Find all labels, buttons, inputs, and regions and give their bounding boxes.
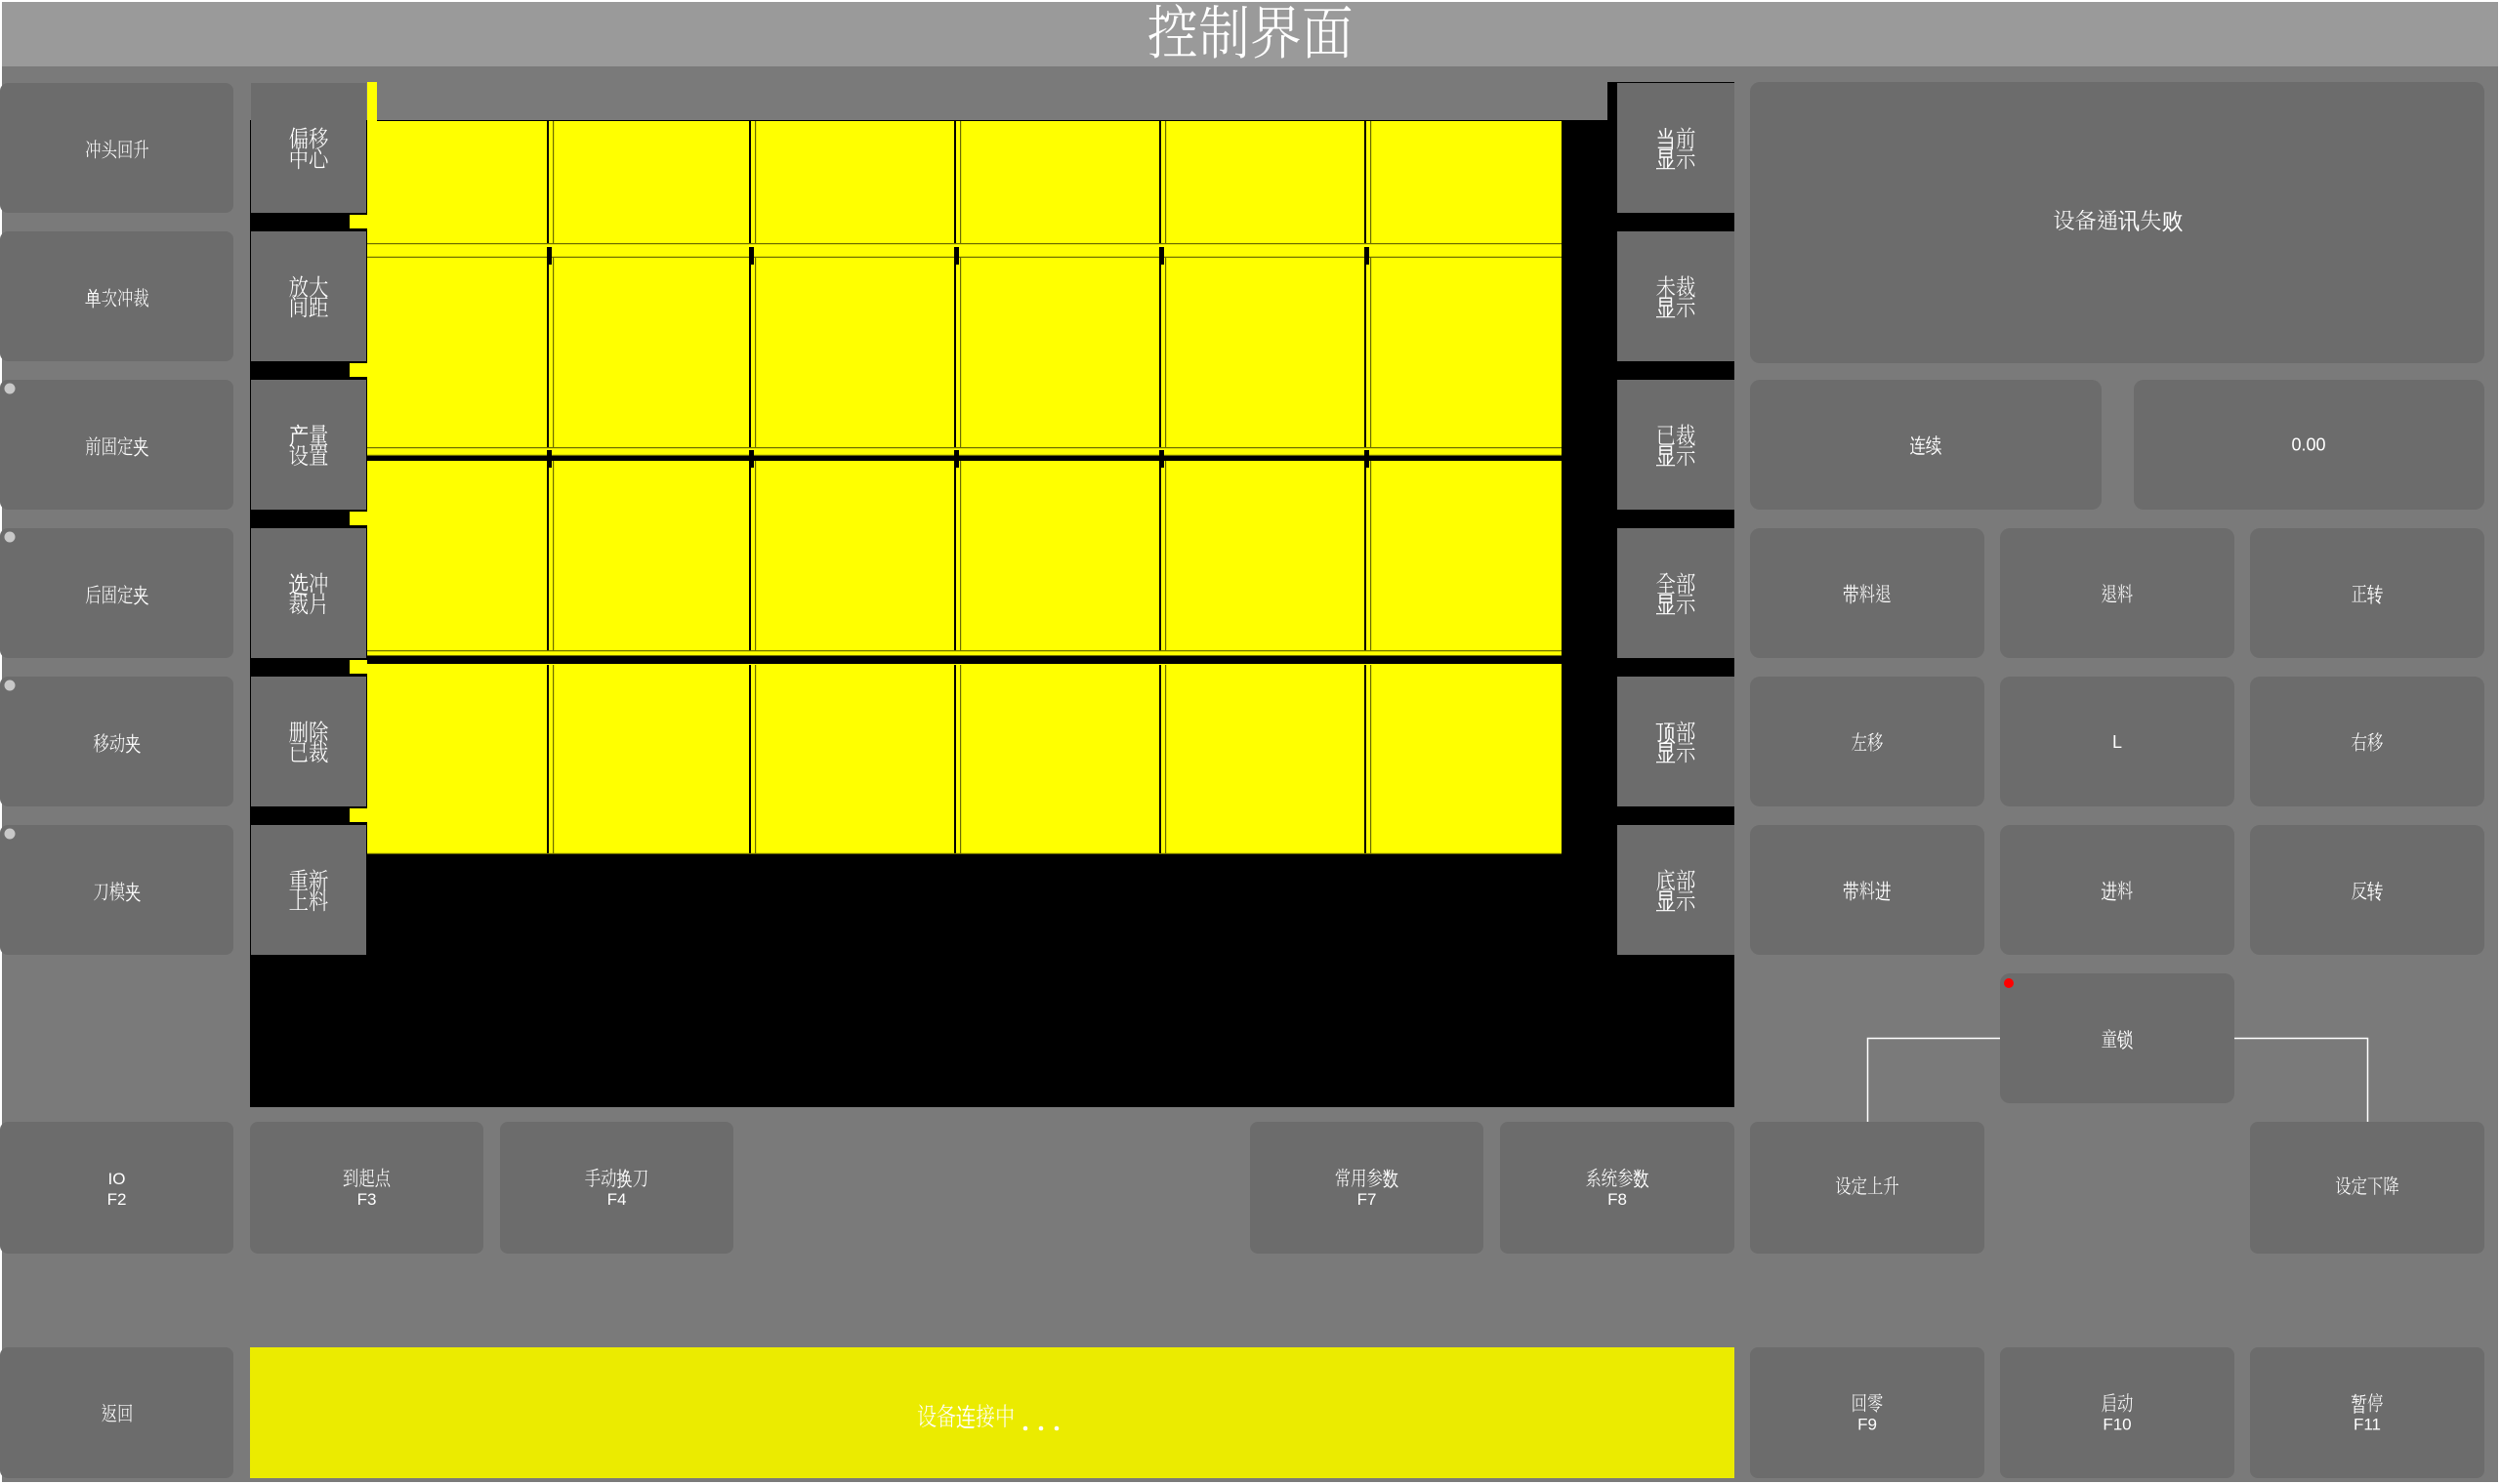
svg-text:F7: F7 bbox=[1357, 1190, 1377, 1209]
svg-text:F2: F2 bbox=[107, 1190, 127, 1209]
svg-text:F4: F4 bbox=[607, 1190, 627, 1209]
svg-text:F8: F8 bbox=[1607, 1190, 1627, 1209]
svg-text:IO: IO bbox=[108, 1170, 126, 1188]
svg-text:F11: F11 bbox=[2354, 1416, 2381, 1434]
svg-text:F3: F3 bbox=[357, 1190, 377, 1209]
svg-text:F9: F9 bbox=[1857, 1416, 1877, 1434]
svg-text:0.00: 0.00 bbox=[2291, 435, 2325, 455]
svg-text:L: L bbox=[2112, 732, 2122, 752]
svg-text:F10: F10 bbox=[2103, 1416, 2131, 1434]
